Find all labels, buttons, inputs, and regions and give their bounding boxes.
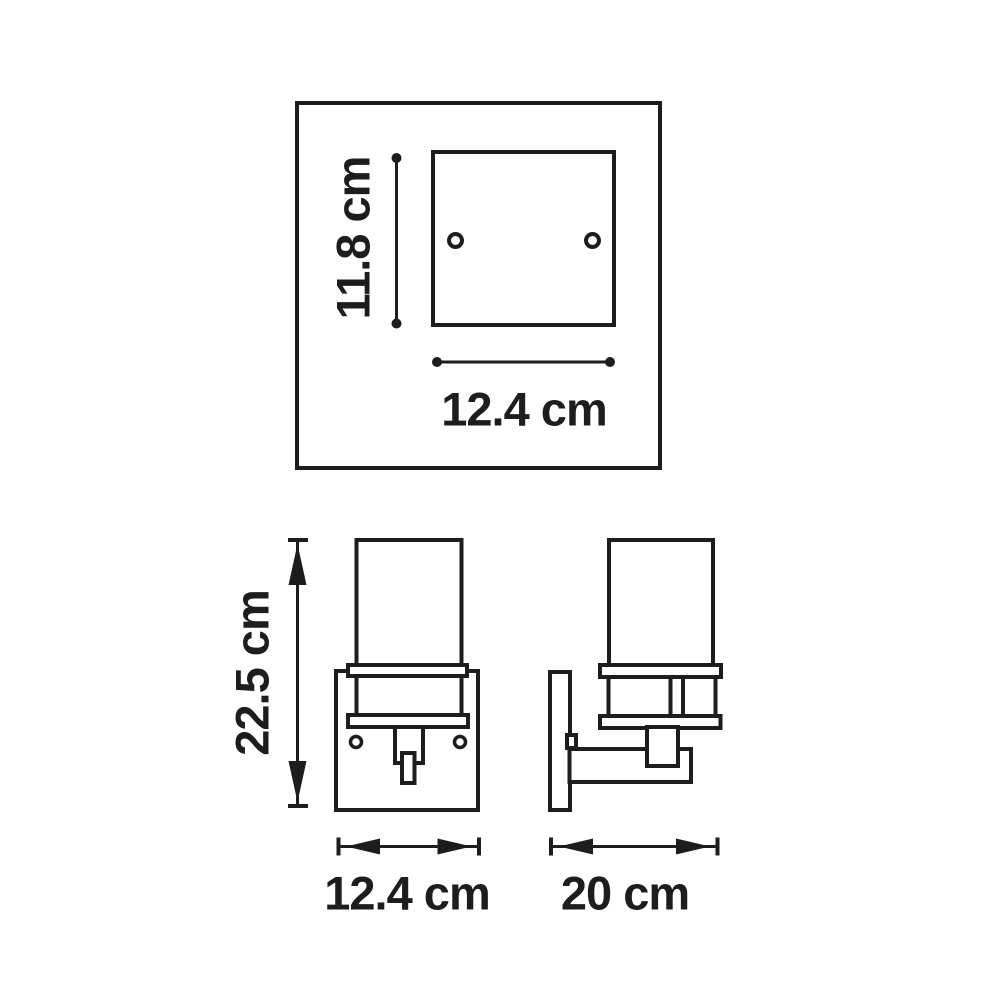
side-shade-lower-back [683, 677, 716, 717]
screw-hole [449, 234, 462, 247]
dimension-label-fixture-depth: 20 cm [561, 870, 689, 917]
side-shade-lower-front [609, 677, 671, 717]
dimension-label-fixture-width: 12.4 cm [324, 870, 489, 917]
dimension-line-front-width [339, 838, 480, 856]
side-view [550, 540, 721, 856]
front-view [288, 540, 479, 856]
side-socket-stem [647, 727, 678, 766]
dimension-line-top-width [432, 357, 615, 367]
side-plate-boss [567, 735, 576, 748]
front-stem-tab [402, 753, 415, 783]
arrow-right-icon [438, 839, 472, 855]
arrow-down-icon [289, 761, 307, 802]
arrow-right-icon [676, 839, 710, 855]
side-glass-shade [609, 540, 713, 665]
dimension-line-top-height [392, 153, 402, 329]
arrow-left-icon [559, 839, 593, 855]
drawing-linework [0, 0, 1000, 1000]
dimension-label-plate-width: 12.4 cm [441, 386, 606, 433]
screw-hole [351, 737, 362, 748]
arrow-up-icon [289, 544, 307, 585]
dimension-line-front-height [288, 540, 308, 806]
front-top-collar [348, 665, 467, 676]
screw-hole [455, 737, 466, 748]
screw-hole [586, 234, 599, 247]
dimension-line-side-depth [551, 838, 718, 856]
dimension-label-plate-height: 11.8 cm [330, 157, 377, 320]
dimension-drawing: 11.8 cm 12.4 cm 22.5 cm 12.4 cm 20 cm [0, 0, 1000, 1000]
dimension-label-fixture-height: 22.5 cm [229, 590, 276, 755]
front-glass-shade [357, 540, 462, 716]
arrow-left-icon [346, 839, 380, 855]
